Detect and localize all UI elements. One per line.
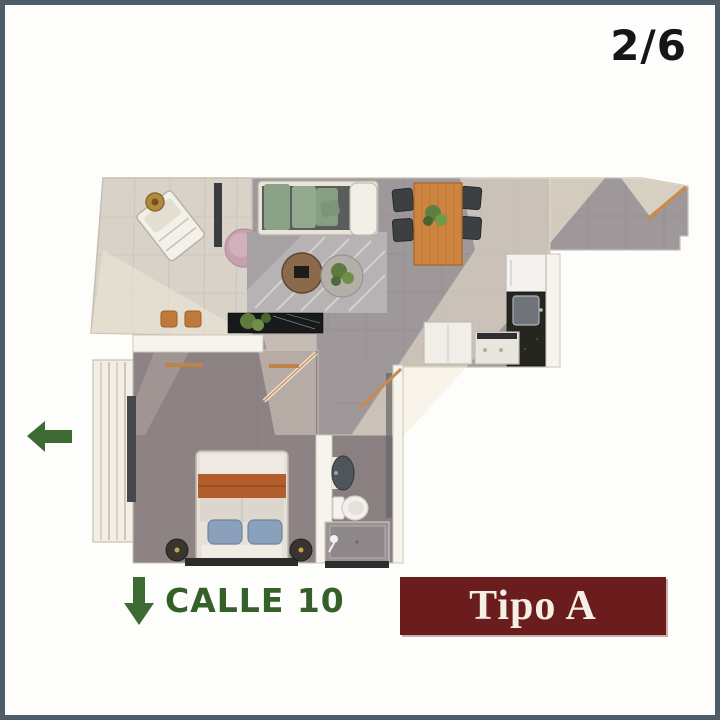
entry-hall — [550, 178, 688, 250]
kitchen-cabinet — [424, 322, 472, 364]
bed — [196, 451, 288, 563]
shower — [325, 522, 389, 562]
dining-table — [414, 183, 462, 265]
down-arrow-icon — [123, 575, 155, 627]
pillow — [248, 520, 282, 544]
stool — [161, 311, 177, 327]
curtain-panel — [127, 396, 136, 502]
west-arrow-icon — [27, 421, 72, 452]
kitchen-sink — [513, 296, 539, 325]
sofa — [258, 181, 378, 235]
headboard — [185, 558, 298, 566]
window-band — [93, 360, 136, 542]
shelf — [269, 364, 299, 368]
pillow — [208, 520, 242, 544]
bedroom — [93, 335, 318, 566]
shelf — [165, 363, 203, 367]
coffee-table-concrete — [321, 255, 363, 297]
terrace — [91, 178, 263, 361]
street-label: CALLE 10 — [123, 575, 345, 627]
stove — [475, 332, 519, 364]
planter — [228, 313, 323, 333]
nightstand — [290, 539, 312, 561]
nightstand — [166, 539, 188, 561]
tv-panel — [214, 183, 222, 247]
kitchen-wall — [546, 254, 560, 367]
fridge — [506, 254, 546, 292]
unit-type-label: Tipo A — [469, 582, 597, 630]
stool — [185, 311, 201, 327]
toilet — [333, 496, 368, 520]
street-name: CALLE 10 — [165, 575, 345, 627]
bathroom-wall — [393, 365, 403, 563]
unit-type-banner: Tipo A — [400, 577, 666, 635]
bedroom-wall — [133, 335, 263, 352]
page-frame: 2/6 — [0, 0, 720, 720]
coffee-table-wood — [282, 253, 322, 293]
bathroom-sink — [332, 456, 354, 490]
